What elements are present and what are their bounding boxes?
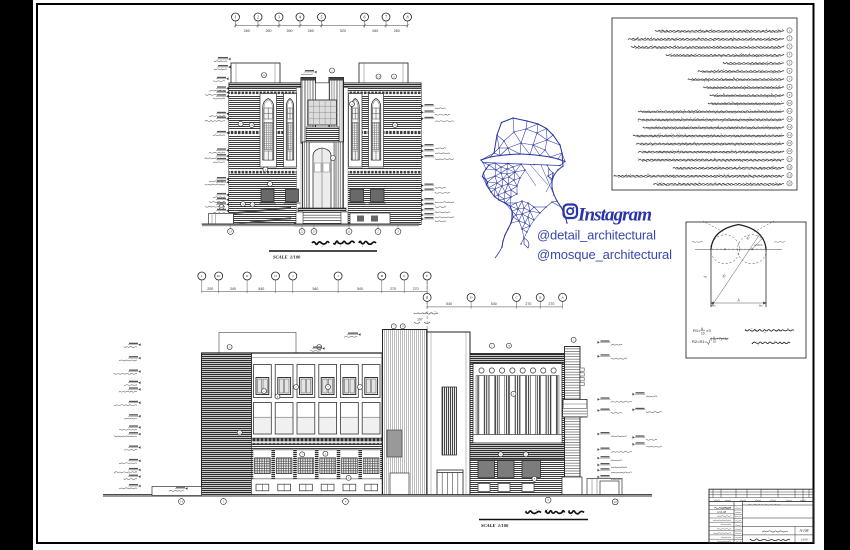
- svg-text:520: 520: [340, 29, 346, 33]
- svg-text:260: 260: [372, 29, 378, 33]
- svg-text:270: 270: [525, 302, 531, 306]
- svg-text:10: 10: [788, 101, 792, 105]
- svg-text:1/100: 1/100: [800, 538, 808, 542]
- svg-text:15: 15: [788, 141, 792, 145]
- svg-text:A-108: A-108: [799, 529, 809, 533]
- svg-text:L: L: [200, 274, 203, 278]
- svg-text:17: 17: [788, 157, 792, 161]
- svg-text:260: 260: [394, 29, 400, 33]
- svg-text:12: 12: [788, 117, 792, 121]
- svg-text:10: 10: [701, 332, 705, 336]
- svg-text:540: 540: [357, 287, 363, 291]
- svg-text:J1: J1: [274, 274, 278, 278]
- svg-text:260: 260: [308, 29, 314, 33]
- svg-text:A/10=3: A/10=3: [754, 243, 763, 247]
- svg-text:R1=: R1=: [693, 328, 701, 333]
- svg-text:11: 11: [788, 109, 791, 113]
- svg-text:SCALE 1/100: SCALE 1/100: [273, 255, 301, 260]
- svg-text:2: 2: [257, 14, 259, 19]
- svg-text:18: 18: [788, 165, 792, 169]
- svg-text:GSI-08: GSI-08: [717, 510, 727, 514]
- svg-text:270: 270: [413, 287, 419, 291]
- svg-text:Instagram: Instagram: [577, 205, 652, 226]
- svg-text:4: 4: [299, 14, 301, 19]
- svg-text:8: 8: [407, 14, 409, 19]
- svg-text:270: 270: [548, 302, 554, 306]
- svg-text:H: H: [380, 274, 384, 278]
- svg-text:B: B: [539, 296, 541, 300]
- svg-text:540: 540: [258, 287, 264, 291]
- svg-text:11: 11: [251, 203, 253, 206]
- svg-text:13: 13: [788, 125, 792, 129]
- svg-text:×3: ×3: [706, 328, 711, 333]
- svg-text:K1: K1: [216, 274, 221, 278]
- svg-text:20: 20: [788, 182, 792, 186]
- svg-text:197: 197: [417, 318, 423, 322]
- svg-text:260: 260: [287, 29, 293, 33]
- svg-text:340: 340: [230, 287, 236, 291]
- svg-text:16: 16: [788, 149, 792, 153]
- svg-text:@mosque_architectural: @mosque_architectural: [537, 247, 672, 262]
- svg-text:14: 14: [788, 133, 792, 137]
- svg-text:@detail_architectural: @detail_architectural: [537, 228, 656, 243]
- svg-text:D: D: [469, 296, 473, 300]
- svg-text:200: 200: [207, 287, 213, 291]
- svg-text:6m: 6m: [759, 304, 764, 308]
- svg-text:5: 5: [321, 14, 323, 19]
- svg-text:260: 260: [266, 29, 272, 33]
- svg-text:540: 540: [312, 287, 318, 291]
- svg-text:3: 3: [278, 14, 280, 19]
- svg-text:+7)²+A²: +7)²+A²: [717, 337, 728, 341]
- svg-text:540: 540: [446, 302, 452, 306]
- svg-text:1: 1: [491, 345, 492, 348]
- svg-text:1: 1: [235, 14, 237, 19]
- svg-text:6m: 6m: [712, 304, 717, 308]
- svg-text:540: 540: [491, 302, 497, 306]
- svg-text:19: 19: [788, 173, 792, 177]
- svg-text:R2=R1=: R2=R1=: [692, 339, 708, 344]
- svg-text:SCALE 1/100: SCALE 1/100: [481, 523, 509, 528]
- svg-text:270: 270: [390, 287, 396, 291]
- svg-text:260: 260: [244, 29, 250, 33]
- svg-text:6: 6: [364, 14, 366, 19]
